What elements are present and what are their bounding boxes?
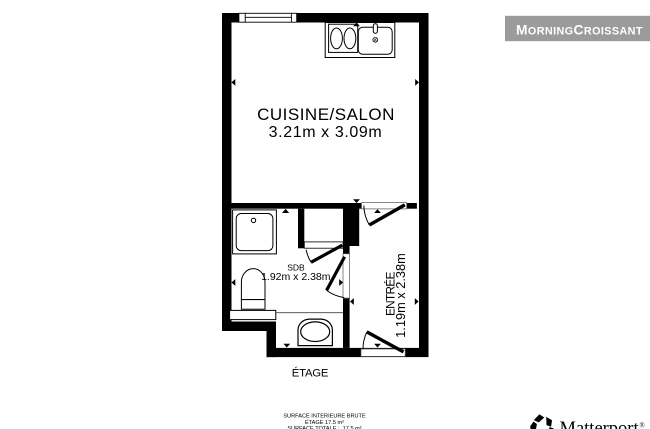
svg-text:Matterport: Matterport bbox=[560, 419, 640, 429]
svg-text:®: ® bbox=[640, 422, 646, 429]
svg-text:ÉTAGE 17.5 m²: ÉTAGE 17.5 m² bbox=[305, 419, 344, 426]
svg-text:3.21m x 3.09m: 3.21m x 3.09m bbox=[269, 124, 383, 141]
svg-text:CUISINE/SALON: CUISINE/SALON bbox=[257, 105, 395, 124]
svg-text:SURFACE INTERIEURE BRUTE: SURFACE INTERIEURE BRUTE bbox=[283, 414, 366, 420]
svg-text:MORNINGCROISSANT: MORNINGCROISSANT bbox=[516, 22, 643, 37]
svg-text:1.92m x 2.38m: 1.92m x 2.38m bbox=[261, 271, 331, 283]
svg-text:1.19m x 2.38m: 1.19m x 2.38m bbox=[393, 253, 408, 338]
svg-text:ÉTAGE: ÉTAGE bbox=[292, 367, 329, 380]
